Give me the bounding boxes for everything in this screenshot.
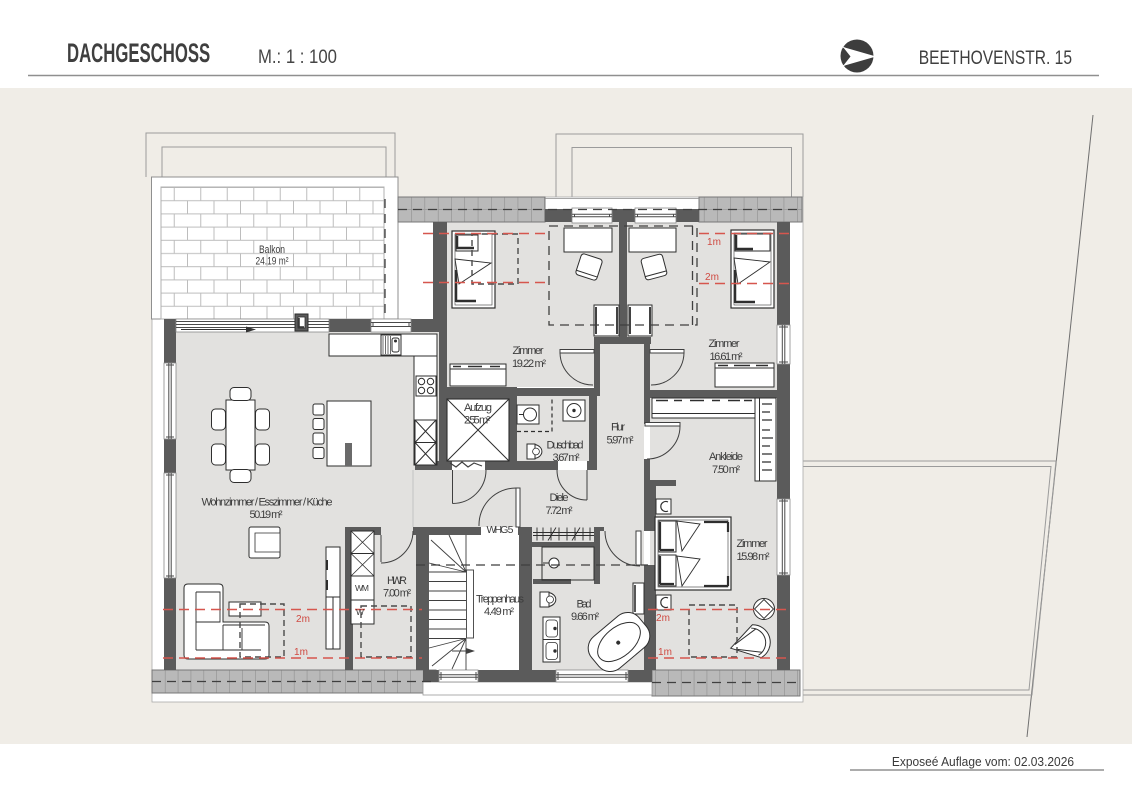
svg-text:Wohnzimmer / Esszimmer / Küch: Wohnzimmer / Esszimmer / Küche <box>202 497 333 509</box>
svg-text:2 m: 2 m <box>656 613 670 624</box>
svg-text:W: W <box>356 607 364 617</box>
svg-text:7.72 m²: 7.72 m² <box>546 505 573 517</box>
svg-text:19.22 m²: 19.22 m² <box>512 358 546 370</box>
svg-text:24.19 m²: 24.19 m² <box>256 256 289 268</box>
svg-text:7.00 m²: 7.00 m² <box>383 588 411 600</box>
svg-text:1 m: 1 m <box>707 237 721 248</box>
svg-text:2 m: 2 m <box>296 614 310 625</box>
svg-text:4.49 m²: 4.49 m² <box>484 606 514 618</box>
svg-text:Zimmer: Zimmer <box>709 338 740 350</box>
svg-text:2 m: 2 m <box>705 272 719 283</box>
svg-text:Bad: Bad <box>577 599 592 611</box>
svg-text:Flur: Flur <box>611 422 625 434</box>
svg-text:50.19 m²: 50.19 m² <box>250 509 283 521</box>
svg-text:HWR: HWR <box>387 575 407 587</box>
svg-text:1 m: 1 m <box>294 647 308 658</box>
svg-text:16.61 m²: 16.61 m² <box>710 351 743 363</box>
svg-text:Zimmer: Zimmer <box>513 345 544 357</box>
svg-text:DACHGESCHOSS: DACHGESCHOSS <box>67 38 210 68</box>
svg-text:15.98 m²: 15.98 m² <box>737 551 770 563</box>
svg-text:Ankleide: Ankleide <box>709 451 743 463</box>
svg-text:7.50 m²: 7.50 m² <box>712 464 740 476</box>
svg-text:Duschbad: Duschbad <box>547 440 584 452</box>
svg-text:1 m: 1 m <box>658 647 672 658</box>
svg-text:Aufzug: Aufzug <box>464 402 492 414</box>
svg-text:2.55 m²: 2.55 m² <box>464 415 490 427</box>
svg-text:WM: WM <box>355 583 369 593</box>
svg-text:Zimmer: Zimmer <box>737 538 768 550</box>
svg-text:Exposeé Auflage vom: 02.03.202: Exposeé Auflage vom: 02.03.2026 <box>892 755 1074 770</box>
svg-text:5.97 m²: 5.97 m² <box>607 435 634 447</box>
svg-text:Treppenhaus: Treppenhaus <box>476 594 525 606</box>
svg-text:BEETHOVENSTR. 15: BEETHOVENSTR. 15 <box>919 46 1072 68</box>
svg-text:WHG 5: WHG 5 <box>487 524 514 536</box>
svg-text:Diele: Diele <box>550 492 569 504</box>
svg-text:3.67 m²: 3.67 m² <box>553 452 580 464</box>
svg-text:Balkon: Balkon <box>259 244 285 256</box>
svg-text:M.: 1 : 100: M.: 1 : 100 <box>258 46 337 67</box>
svg-text:9.66 m²: 9.66 m² <box>571 611 599 623</box>
